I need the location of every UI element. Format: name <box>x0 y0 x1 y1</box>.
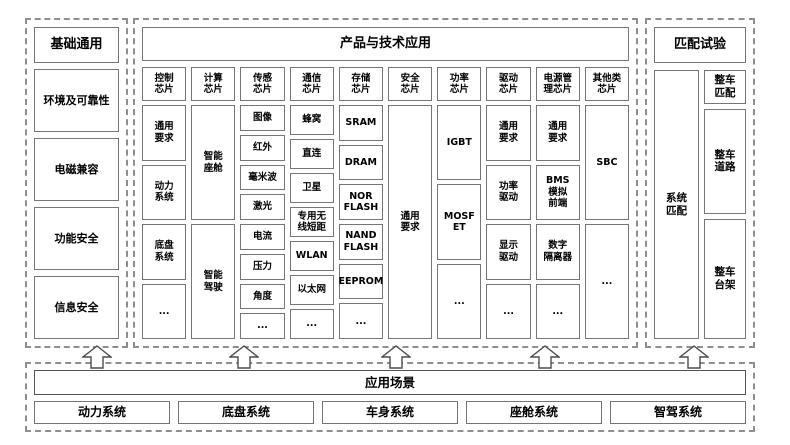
chip-column-header: 功率 芯片 <box>437 67 481 101</box>
chip-test-item: 激光 <box>240 194 284 220</box>
chip-test-item: 电流 <box>240 224 284 250</box>
chip-test-item: ... <box>339 303 383 339</box>
up-arrow-icon <box>381 345 411 369</box>
chip-test-item: 专用无 线短距 <box>290 207 334 237</box>
matching-test-body: 系统 匹配 整车 匹配整车 道路整车 台架 <box>654 70 746 339</box>
chip-column-header: 电源管 理芯片 <box>536 67 580 101</box>
chip-test-item: 压力 <box>240 254 284 280</box>
chip-test-item: SBC <box>585 105 629 220</box>
chip-test-item: 通用 要求 <box>388 105 432 339</box>
chip-test-item: 通用 要求 <box>142 105 186 161</box>
chip-test-item: NAND FLASH <box>339 224 383 260</box>
chip-column-header: 驱动 芯片 <box>486 67 530 101</box>
chip-test-item: MOSF ET <box>437 184 481 259</box>
chip-test-item: 底盘 系统 <box>142 224 186 280</box>
chip-column-3: 通信 芯片蜂窝直连卫星专用无 线短距WLAN以太网... <box>290 67 334 339</box>
matching-test-title: 匹配试验 <box>654 27 746 63</box>
chip-test-item: 功率 驱动 <box>486 165 530 221</box>
vehicle-test-items: 整车 匹配整车 道路整车 台架 <box>704 70 746 339</box>
general-requirement-item: 环境及可靠性 <box>34 69 119 132</box>
basic-general-panel: 基础通用 环境及可靠性电磁兼容功能安全信息安全 <box>25 18 128 348</box>
chip-test-item: 直连 <box>290 139 334 169</box>
chip-test-item: ... <box>142 284 186 340</box>
chip-test-item: 红外 <box>240 135 284 161</box>
chip-test-item: 蜂窝 <box>290 105 334 135</box>
chip-test-item: NOR FLASH <box>339 184 383 220</box>
chip-test-item: ... <box>290 309 334 339</box>
chip-column-header: 计算 芯片 <box>191 67 235 101</box>
chip-test-item: 毫米波 <box>240 165 284 191</box>
chip-column-9: 其他类 芯片SBC... <box>585 67 629 339</box>
chip-test-item: ... <box>437 264 481 339</box>
chip-column-header: 安全 芯片 <box>388 67 432 101</box>
chip-test-item: 动力 系统 <box>142 165 186 221</box>
up-arrow-icon <box>82 345 112 369</box>
chip-column-5: 安全 芯片通用 要求 <box>388 67 432 339</box>
vehicle-test-item: 整车 道路 <box>704 109 746 213</box>
chip-column-header: 控制 芯片 <box>142 67 186 101</box>
chip-test-item: 通用 要求 <box>486 105 530 161</box>
application-scenarios-bar: 应用场景 <box>34 370 746 395</box>
chip-testing-framework-diagram: 基础通用 环境及可靠性电磁兼容功能安全信息安全 产品与技术应用 控制 芯片通用 … <box>0 0 790 445</box>
application-system-item: 座舱系统 <box>466 401 602 424</box>
application-system-item: 智驾系统 <box>610 401 746 424</box>
application-system-items: 动力系统底盘系统车身系统座舱系统智驾系统 <box>34 401 746 424</box>
chip-test-item: 智能 驾驶 <box>191 224 235 339</box>
chip-test-item: 通用 要求 <box>536 105 580 161</box>
chip-column-0: 控制 芯片通用 要求动力 系统底盘 系统... <box>142 67 186 339</box>
chip-test-item: IGBT <box>437 105 481 180</box>
chip-test-item: ... <box>486 284 530 340</box>
chip-column-8: 电源管 理芯片通用 要求BMS 模拟 前端数字 隔离器... <box>536 67 580 339</box>
application-scenarios-panel: 应用场景 动力系统底盘系统车身系统座舱系统智驾系统 <box>25 362 755 432</box>
matching-test-panel: 匹配试验 系统 匹配 整车 匹配整车 道路整车 台架 <box>645 18 755 348</box>
application-system-item: 底盘系统 <box>178 401 314 424</box>
chip-test-item: DRAM <box>339 145 383 181</box>
chip-test-item: 卫星 <box>290 173 334 203</box>
general-requirement-item: 信息安全 <box>34 276 119 339</box>
chip-test-item: BMS 模拟 前端 <box>536 165 580 221</box>
chip-test-item: 智能 座舱 <box>191 105 235 220</box>
vehicle-test-item: 整车 台架 <box>704 219 746 340</box>
chip-test-item: ... <box>240 313 284 339</box>
chip-column-2: 传感 芯片图像红外毫米波激光电流压力角度... <box>240 67 284 339</box>
up-arrow-icon <box>229 345 259 369</box>
vehicle-test-item: 整车 匹配 <box>704 70 746 104</box>
system-matching-box: 系统 匹配 <box>654 70 699 339</box>
basic-general-title: 基础通用 <box>34 27 119 63</box>
chip-column-4: 存储 芯片SRAMDRAMNOR FLASHNAND FLASHEEPROM..… <box>339 67 383 339</box>
chip-test-item: EEPROM <box>339 264 383 300</box>
chip-test-item: ... <box>585 224 629 339</box>
general-requirement-item: 功能安全 <box>34 207 119 270</box>
chip-test-item: 角度 <box>240 284 284 310</box>
chip-column-header: 通信 芯片 <box>290 67 334 101</box>
chip-test-item: 显示 驱动 <box>486 224 530 280</box>
chip-test-item: WLAN <box>290 241 334 271</box>
application-system-item: 动力系统 <box>34 401 170 424</box>
application-system-item: 车身系统 <box>322 401 458 424</box>
chip-column-header: 其他类 芯片 <box>585 67 629 101</box>
products-technology-title: 产品与技术应用 <box>142 27 629 61</box>
products-technology-panel: 产品与技术应用 控制 芯片通用 要求动力 系统底盘 系统...计算 芯片智能 座… <box>133 18 638 348</box>
chip-column-header: 存储 芯片 <box>339 67 383 101</box>
chip-test-item: 数字 隔离器 <box>536 224 580 280</box>
chip-column-header: 传感 芯片 <box>240 67 284 101</box>
chip-category-columns: 控制 芯片通用 要求动力 系统底盘 系统...计算 芯片智能 座舱智能 驾驶传感… <box>142 67 629 339</box>
up-arrow-icon <box>530 345 560 369</box>
chip-test-item: 以太网 <box>290 275 334 305</box>
general-requirement-item: 电磁兼容 <box>34 138 119 201</box>
up-arrow-icon <box>679 345 709 369</box>
chip-test-item: 图像 <box>240 105 284 131</box>
chip-test-item: SRAM <box>339 105 383 141</box>
basic-general-items: 环境及可靠性电磁兼容功能安全信息安全 <box>34 69 119 339</box>
chip-column-6: 功率 芯片IGBTMOSF ET... <box>437 67 481 339</box>
chip-column-7: 驱动 芯片通用 要求功率 驱动显示 驱动... <box>486 67 530 339</box>
chip-column-1: 计算 芯片智能 座舱智能 驾驶 <box>191 67 235 339</box>
chip-test-item: ... <box>536 284 580 340</box>
